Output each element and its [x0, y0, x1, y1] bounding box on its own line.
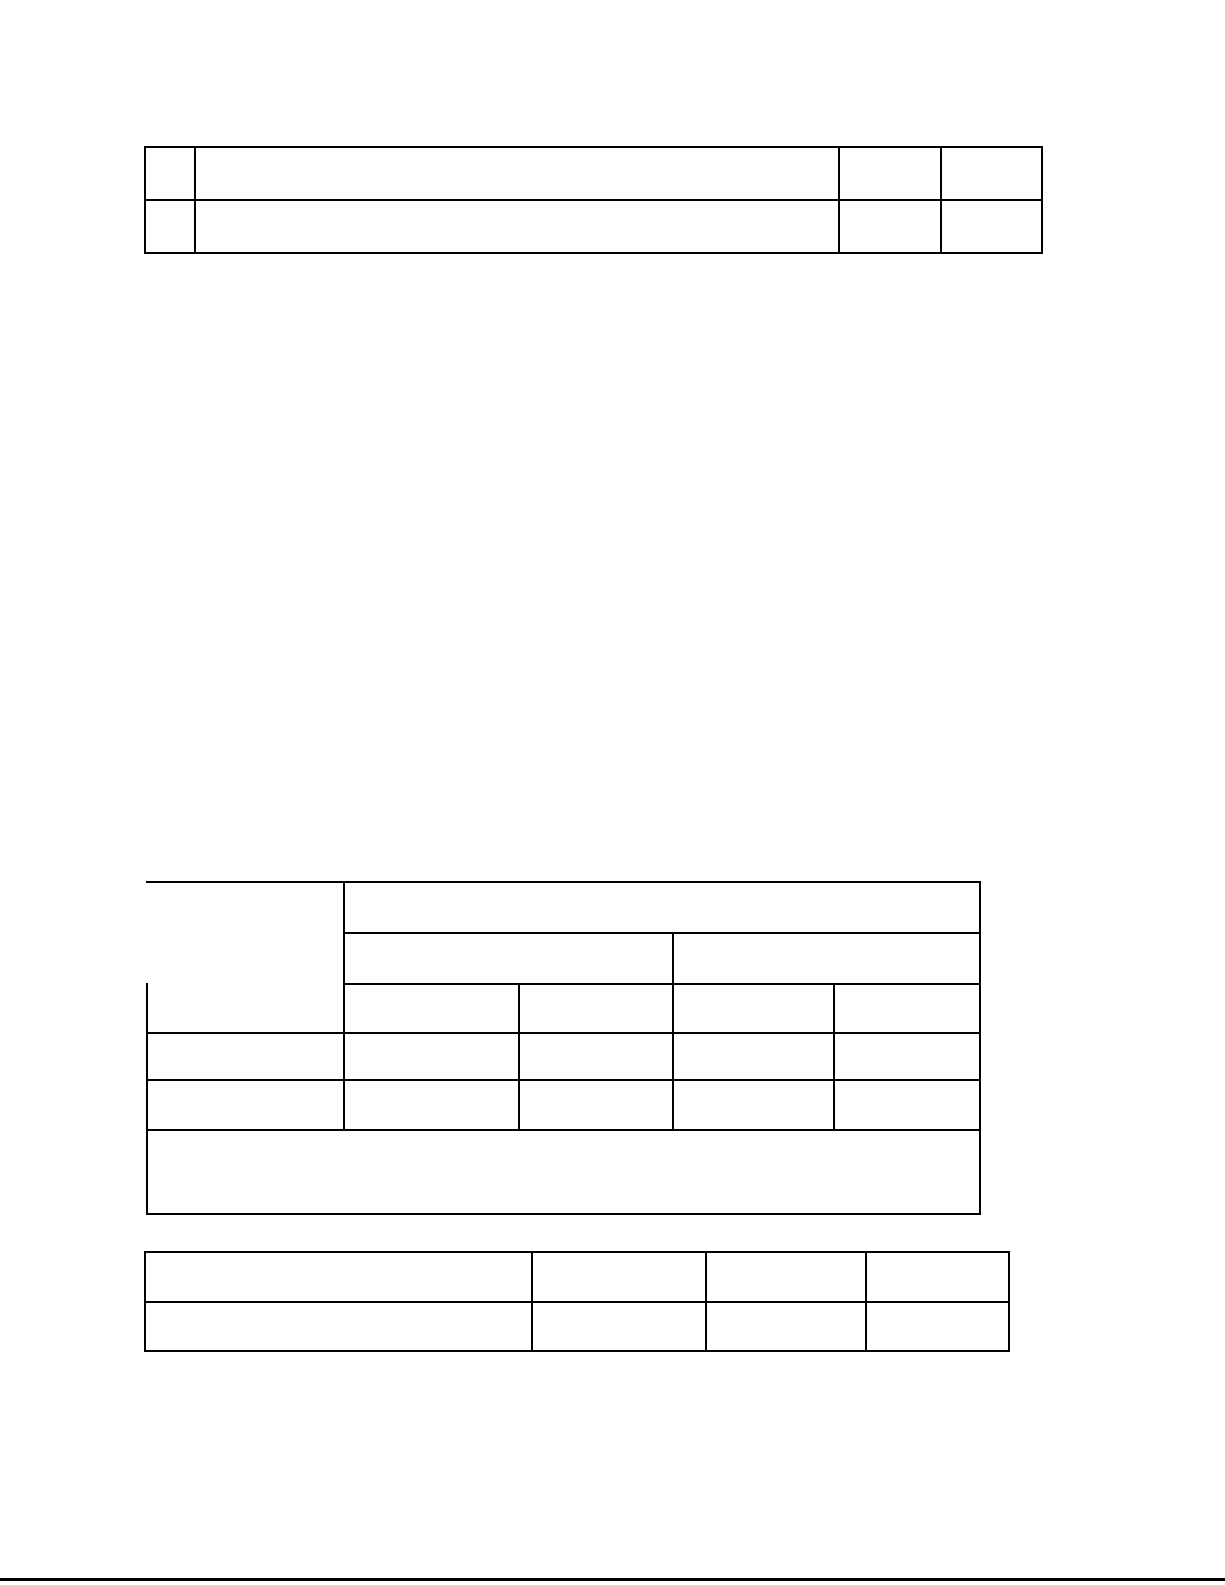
table-cell	[941, 200, 1042, 253]
middle-table-data-cell	[520, 1034, 672, 1079]
table-row	[145, 147, 1042, 200]
middle-table-data-cell	[345, 1034, 518, 1079]
table-cell	[706, 1302, 866, 1351]
table-cell	[839, 200, 941, 253]
middle-table-column-header-cell	[345, 985, 518, 1032]
document-page	[0, 0, 1225, 1585]
middle-table-data-cell	[345, 1081, 518, 1129]
page-bottom-rule	[0, 1578, 1225, 1581]
table-cell	[532, 1302, 706, 1351]
middle-table-corner-cell	[146, 881, 343, 1032]
top-table	[144, 146, 1043, 254]
table-cell	[941, 147, 1042, 200]
middle-table-row-label-cell	[148, 1034, 343, 1079]
table-row	[145, 200, 1042, 253]
middle-table-data-cell	[674, 1034, 833, 1079]
middle-table-bottom-border	[146, 1213, 981, 1215]
table-cell	[866, 1252, 1009, 1302]
table-row	[145, 1302, 1009, 1351]
table-cell	[195, 200, 839, 253]
table-row	[145, 1252, 1009, 1302]
table-cell	[706, 1252, 866, 1302]
middle-table-group-header-cell	[345, 934, 672, 983]
middle-table-data-cell	[835, 1081, 979, 1129]
middle-table-column-header-cell	[674, 985, 833, 1032]
middle-table-data-cell	[835, 1034, 979, 1079]
middle-table-data-cell	[674, 1081, 833, 1129]
middle-table-span-header-cell	[345, 883, 979, 932]
table-cell	[145, 1252, 532, 1302]
middle-table-group-header-cell	[674, 934, 979, 983]
bottom-table	[144, 1251, 1010, 1352]
table-cell	[839, 147, 941, 200]
table-cell	[145, 1302, 532, 1351]
middle-table-right-border	[979, 881, 981, 1215]
table-cell	[532, 1252, 706, 1302]
table-cell	[145, 147, 195, 200]
table-cell	[866, 1302, 1009, 1351]
middle-table-column-header-cell	[520, 985, 672, 1032]
middle-table-column-header-cell	[835, 985, 979, 1032]
middle-table-row-label-cell	[148, 1081, 343, 1129]
middle-table-data-cell	[520, 1081, 672, 1129]
table-cell	[195, 147, 839, 200]
table-cell	[145, 200, 195, 253]
middle-table-footer-cell	[148, 1131, 979, 1213]
